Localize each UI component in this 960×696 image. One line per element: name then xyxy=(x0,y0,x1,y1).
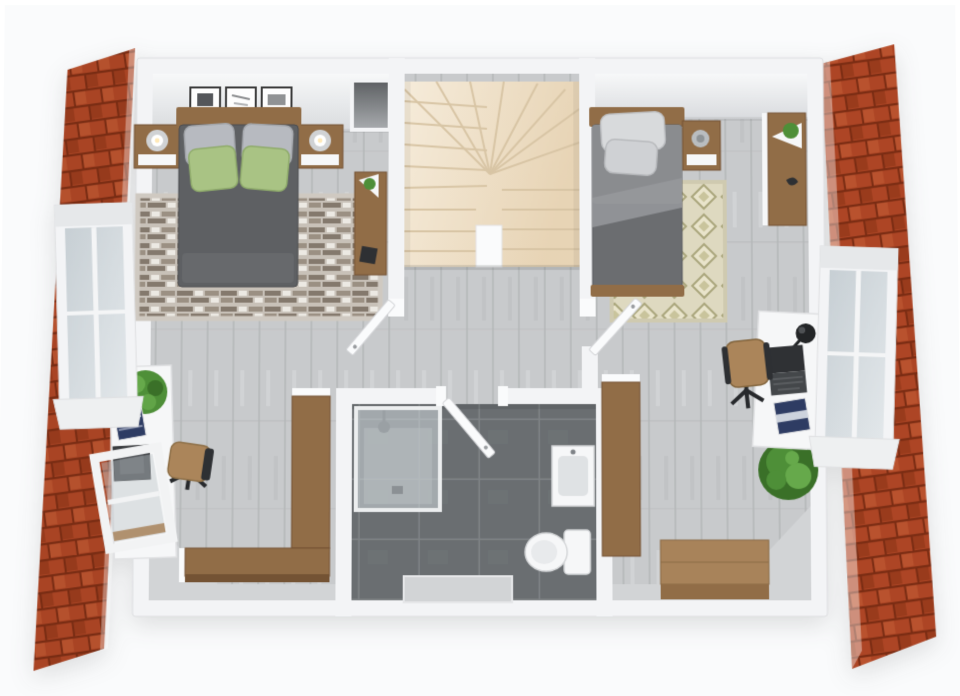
laptop xyxy=(767,345,807,396)
pillow-green-right xyxy=(240,146,290,192)
dormer-right-sill xyxy=(808,436,899,469)
building xyxy=(33,44,936,671)
bathroom xyxy=(335,386,612,616)
perspective-wrapper xyxy=(0,5,960,696)
console-decor xyxy=(359,246,377,264)
bathroom-wall-left xyxy=(335,388,352,616)
nightstand-right xyxy=(297,125,343,168)
washbasin-vanity xyxy=(552,446,594,506)
bathroom-dormer-recess xyxy=(404,576,512,602)
shower-drain xyxy=(392,486,403,494)
floorplan-svg xyxy=(0,5,960,696)
console-table xyxy=(354,172,386,275)
nightstand-left xyxy=(134,125,180,168)
staircase xyxy=(404,82,579,270)
stair-bottom-shadow xyxy=(404,265,579,270)
wardrobe-cabinet xyxy=(762,113,807,225)
dormer-left-sill xyxy=(53,396,144,429)
nightstand-2 xyxy=(683,121,721,170)
dormer-window-left xyxy=(48,202,144,429)
floorplan-stage xyxy=(0,0,960,696)
faucet xyxy=(571,449,576,454)
toilet xyxy=(525,530,590,574)
bathroom-wall-top-left xyxy=(336,388,444,404)
headboard xyxy=(176,107,301,127)
bathroom-jamb-right xyxy=(498,386,508,406)
stair-landing-post xyxy=(476,225,502,267)
pillow-green-left xyxy=(188,145,239,192)
shower-head xyxy=(378,421,390,433)
console-plant xyxy=(364,178,376,190)
stairwell-wall-right-cap xyxy=(580,299,596,317)
magazine xyxy=(774,398,811,435)
storage-chest xyxy=(660,540,769,599)
footboard-2 xyxy=(591,285,685,297)
dormer-window-right xyxy=(808,246,904,470)
bench-right xyxy=(602,374,641,556)
shower-enclosure xyxy=(356,408,440,510)
pillow-white-small xyxy=(604,139,658,176)
wardrobe-plant xyxy=(783,123,799,139)
single-bed xyxy=(589,107,685,297)
wall-niche xyxy=(354,83,388,128)
double-bed xyxy=(175,107,301,287)
